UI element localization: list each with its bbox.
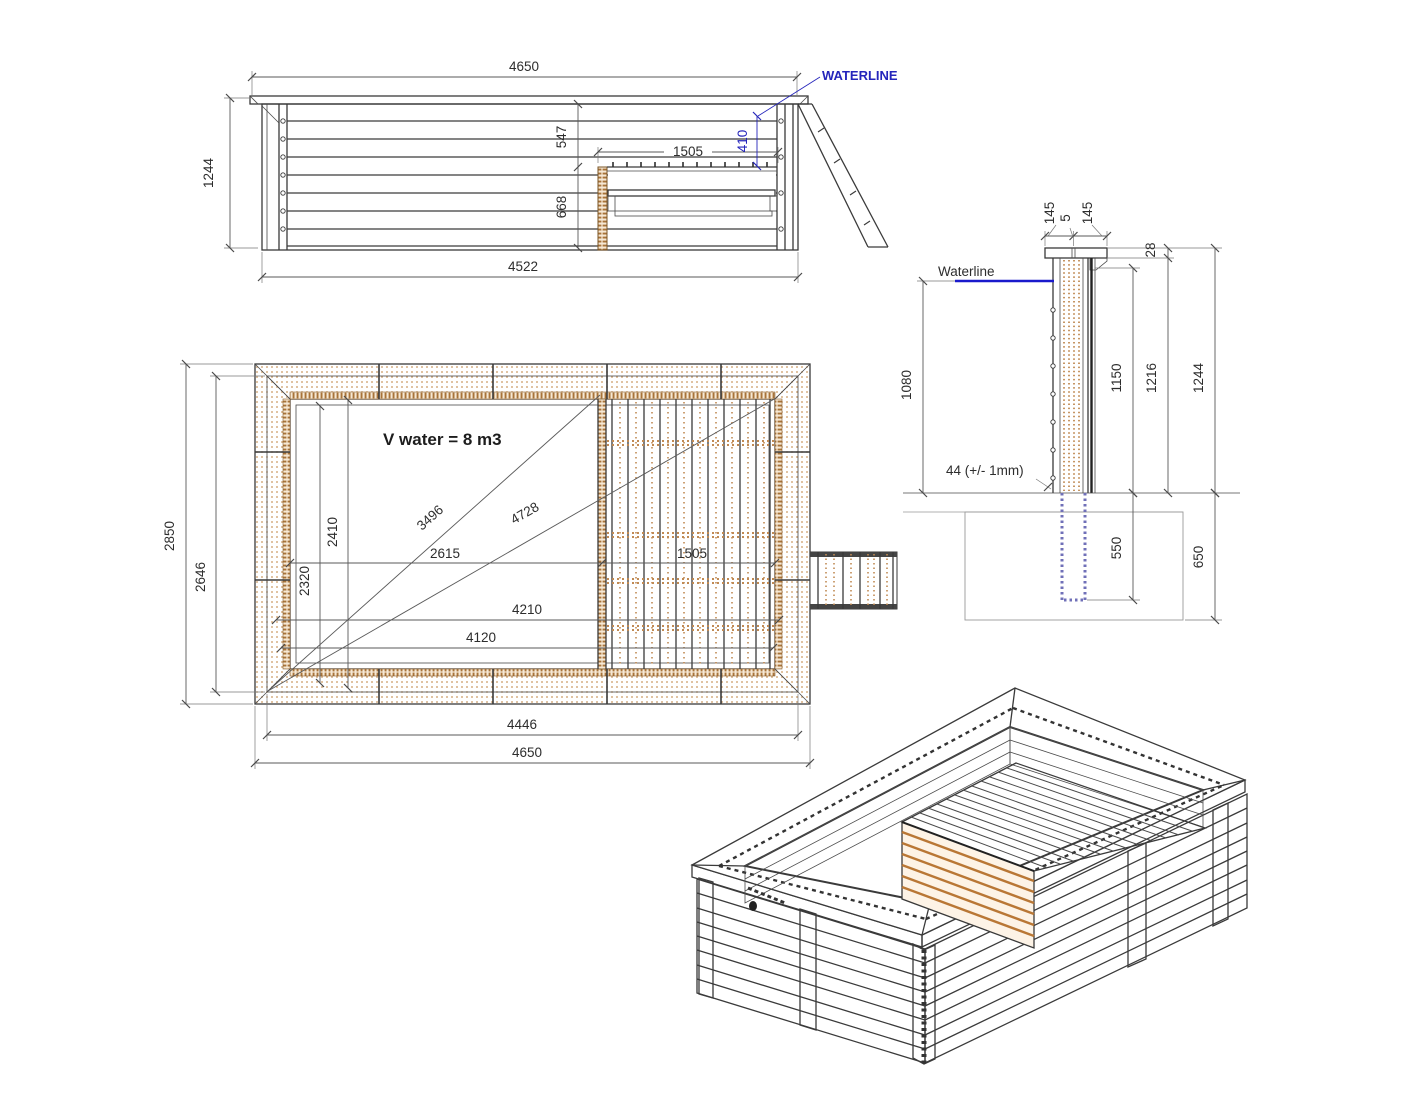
waterline-label-side: WATERLINE: [822, 68, 898, 83]
skimmer-fitting: [749, 901, 757, 911]
dim-diagonal-full: 4728: [508, 499, 542, 527]
deck-ticks: [613, 162, 767, 167]
dim-anchor-depth: 550: [1109, 537, 1124, 560]
dim-inner-width: 2410: [325, 517, 340, 547]
isometric-view: [692, 688, 1247, 1064]
dim-coping-gap: 5: [1058, 214, 1073, 222]
side-ladder: [798, 104, 888, 247]
side-elevation-view: 4650 1244 4522 547 668 1505 410 WATERLIN…: [201, 59, 898, 283]
plan-deck: [598, 399, 775, 669]
plan-measure-lines: [276, 400, 779, 688]
plan-view: V water = 8 m3 2410 2320 3496 4728 2615 …: [162, 364, 897, 769]
wall-section-view: Waterline 44 (+/- 1mm) 145 5 145: [899, 202, 1240, 620]
drawing-canvas: 4650 1244 4522 547 668 1505 410 WATERLIN…: [0, 0, 1422, 1100]
pool-technical-drawing: 4650 1244 4522 547 668 1505 410 WATERLIN…: [0, 0, 1422, 1100]
side-interior-deck: [598, 162, 777, 250]
dim-inner-height: 1150: [1109, 363, 1124, 392]
dim-side-top-width: 4650: [509, 59, 539, 74]
dim-plan-deck-length: 1505: [677, 546, 707, 561]
dim-deck-to-floor: 668: [554, 196, 569, 219]
dim-wall-length: 4446: [507, 717, 537, 732]
dim-waterline-to-deck: 410: [735, 130, 750, 153]
dim-coping-inner: 145: [1080, 202, 1095, 225]
section-wall: [1051, 258, 1095, 493]
volume-label: V water = 8 m3: [383, 430, 502, 449]
dim-side-bottom-width: 4522: [508, 259, 538, 274]
dim-wall-width: 2646: [193, 562, 208, 592]
waterline-label-section: Waterline: [938, 264, 995, 279]
dim-coping-outer: 145: [1042, 202, 1057, 225]
dim-top-to-deck: 547: [554, 126, 569, 149]
dim-foundation-depth: 650: [1191, 546, 1206, 569]
dim-total-height: 1244: [1191, 362, 1206, 393]
dim-side-height: 1244: [201, 157, 216, 188]
dim-diagonal-short: 3496: [414, 502, 446, 533]
iso-right-wall: [925, 794, 1247, 1063]
dim-coping-thickness: 28: [1143, 242, 1158, 257]
dim-inner-width-min: 2320: [297, 566, 312, 596]
dim-side-deck-length: 1505: [673, 144, 703, 159]
dim-inner-length: 4210: [512, 602, 542, 617]
dim-water-depth: 1080: [899, 370, 914, 400]
dim-outer-width: 2850: [162, 521, 177, 551]
dim-outer-length: 4650: [512, 745, 542, 760]
dim-inner-length-min: 4120: [466, 630, 496, 645]
plank-thickness-note: 44 (+/- 1mm): [946, 463, 1024, 478]
section-foundation: [903, 493, 1240, 620]
dim-left-to-deck: 2615: [430, 546, 460, 561]
plan-ladder: [810, 552, 897, 609]
dim-wall-height: 1216: [1144, 363, 1159, 393]
